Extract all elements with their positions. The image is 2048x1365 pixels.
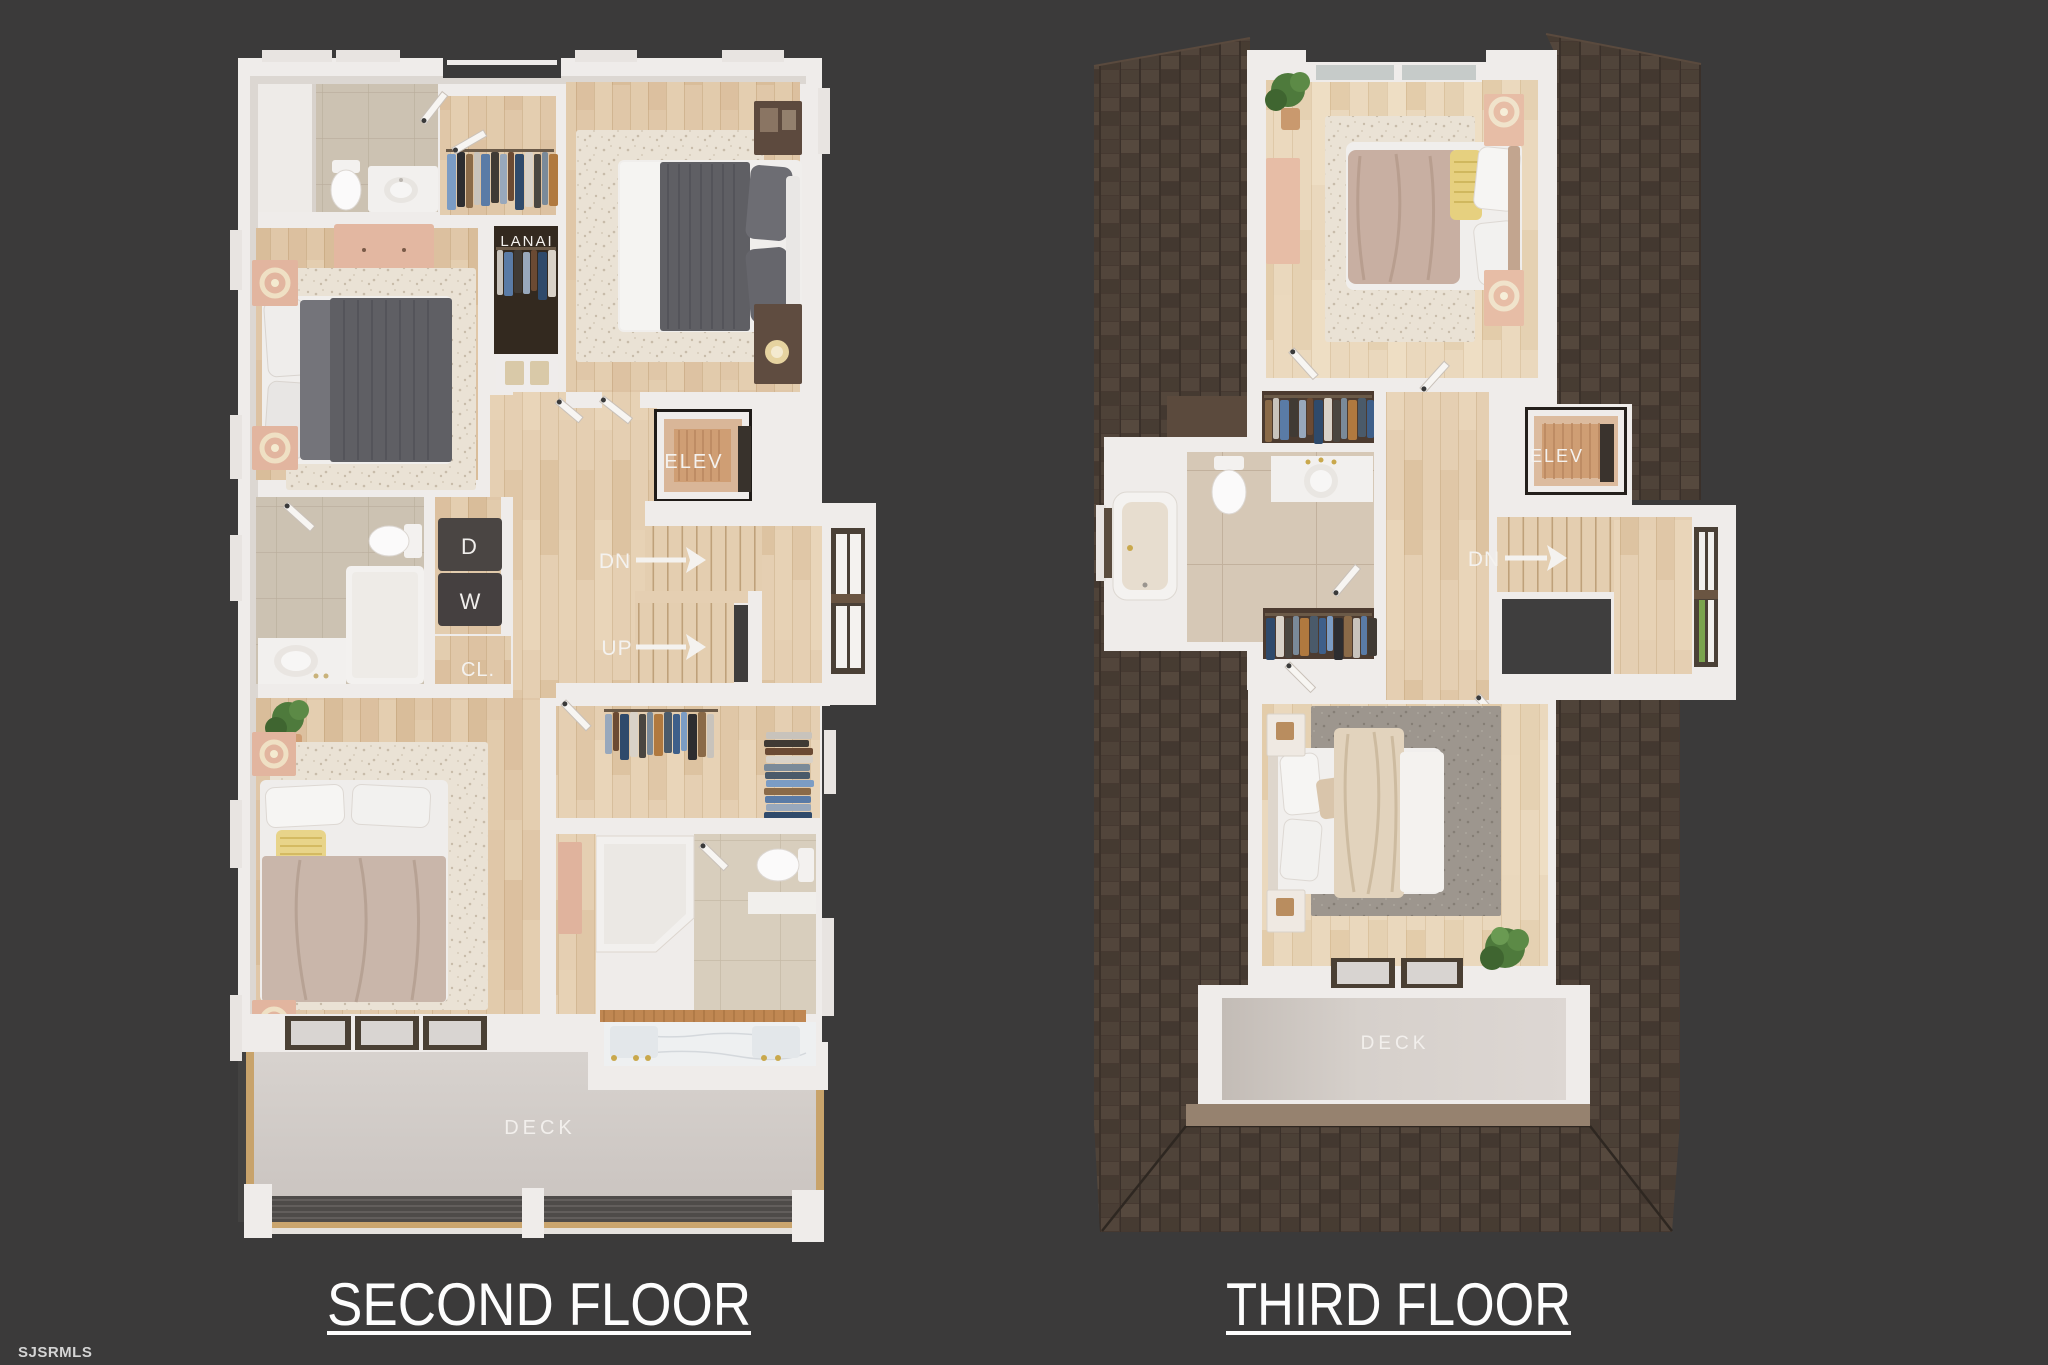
svg-text:DECK: DECK [504,1117,576,1139]
svg-text:W: W [460,589,481,614]
svg-text:SJSRMLS: SJSRMLS [18,1344,92,1361]
svg-text:CL.: CL. [461,659,495,681]
svg-text:DN: DN [1468,548,1500,571]
svg-text:DECK: DECK [1361,1033,1430,1054]
svg-text:ELEV: ELEV [1530,446,1584,466]
svg-text:UP: UP [601,637,632,660]
svg-text:SECOND FLOOR: SECOND FLOOR [327,1271,751,1338]
svg-text:D: D [461,534,477,559]
svg-text:ELEV: ELEV [664,451,723,473]
svg-text:DN: DN [599,550,631,573]
svg-text:LANAI: LANAI [500,233,553,250]
svg-text:THIRD FLOOR: THIRD FLOOR [1226,1271,1571,1338]
